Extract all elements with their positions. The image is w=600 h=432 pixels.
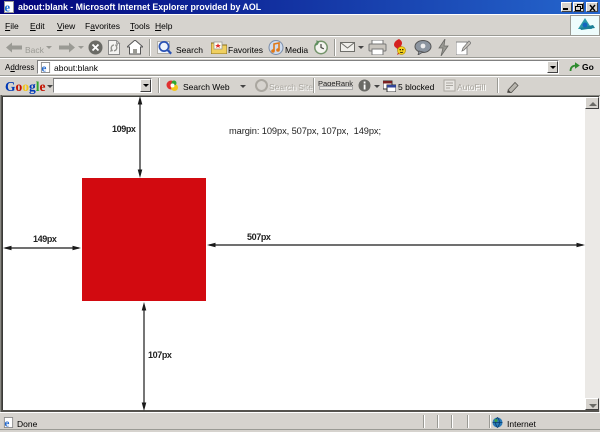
svg-text:e: e — [4, 417, 9, 428]
svg-text:e: e — [5, 1, 11, 13]
svg-text:e: e — [41, 62, 46, 73]
